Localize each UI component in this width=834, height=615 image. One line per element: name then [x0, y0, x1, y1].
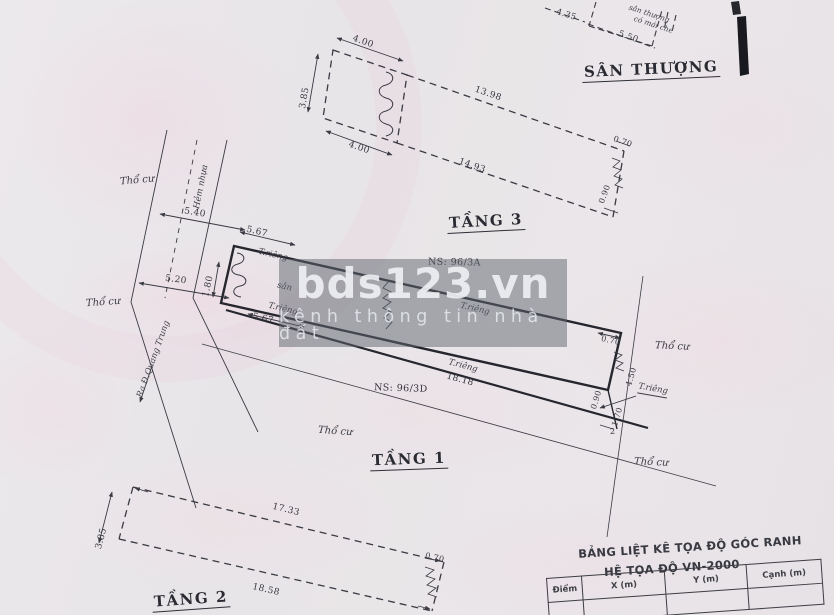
scanned-survey-drawing: SÂN THƯỢNG TẦNG 3 TẦNG 1 TẦNG 2 NS: 96/3… [0, 0, 834, 615]
floor1-title: TẦNG 1 [370, 451, 449, 472]
coord-col-point: Điểm [547, 576, 584, 602]
land-type-label: Thổ cư [655, 341, 690, 353]
watermark-tagline: kênh thông tin nhà đất [279, 309, 567, 344]
coord-cell [548, 600, 585, 615]
alley-lines [131, 130, 258, 508]
roof-stair-scallops [379, 72, 393, 136]
watermark-band: bds123.vn kênh thông tin nhà đất [279, 259, 567, 347]
scan-mark-small [731, 1, 741, 15]
land-type-label: Thổ cư [634, 457, 669, 469]
parcel-id-lower: NS: 96/3D [374, 383, 428, 394]
boundary-point-label: 2 [610, 428, 616, 436]
watermark-brand: bds123.vn [295, 263, 550, 305]
scan-mark-bar [737, 16, 749, 76]
roof-terrace-outline [323, 50, 624, 217]
